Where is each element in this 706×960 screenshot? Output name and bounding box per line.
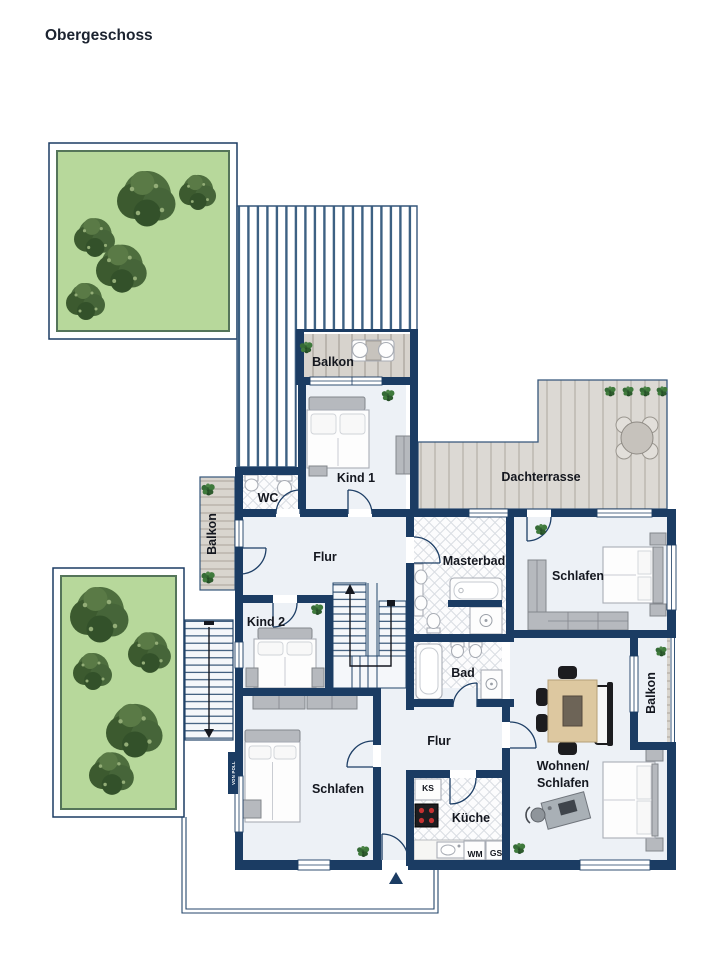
bed-kind2: [246, 628, 324, 688]
room-label-flur-upper: Flur: [313, 550, 337, 564]
room-label-wohnen-1: Wohnen/: [537, 759, 590, 773]
window: [310, 377, 382, 385]
garden-lower: [53, 568, 184, 817]
room-label-bad: Bad: [451, 666, 475, 680]
window: [630, 656, 638, 712]
lounger: [352, 340, 394, 361]
room-label-balkon-top: Balkon: [312, 355, 354, 369]
room-label-kueche: Küche: [452, 811, 490, 825]
terrace-table: [616, 417, 658, 459]
window: [580, 860, 650, 870]
appliance-label-wm: WM: [467, 849, 482, 859]
brand-watermark: VON POLL: [228, 752, 238, 794]
bed-schlafen-lower: [242, 730, 300, 822]
sideboard: [253, 694, 357, 709]
bed-kind1: [307, 397, 369, 476]
window: [235, 520, 243, 547]
wardrobe-kind1: [396, 436, 412, 474]
watermark-text: VON POLL: [231, 761, 236, 785]
room-label-wc: WC: [258, 491, 279, 505]
window: [667, 545, 676, 610]
room-label-kind1: Kind 1: [337, 471, 375, 485]
bed-wohnen: [603, 748, 663, 851]
floorplan-page: Obergeschoss Balkon Kind 1 WC Dachterras…: [0, 0, 706, 960]
room-label-schlafen-lower: Schlafen: [312, 782, 364, 796]
room-label-wohnen-2: Schlafen: [537, 776, 589, 790]
window: [597, 509, 652, 517]
page-title: Obergeschoss: [45, 27, 153, 44]
room-label-balkon-left: Balkon: [205, 513, 219, 555]
window: [298, 860, 330, 870]
appliance-label-gs: GS: [490, 848, 503, 858]
room-label-dachterrasse: Dachterrasse: [501, 470, 580, 484]
exterior-stairs: [185, 620, 233, 740]
floorplan: Obergeschoss Balkon Kind 1 WC Dachterras…: [0, 0, 706, 960]
window: [469, 509, 508, 517]
room-label-flur-lower: Flur: [427, 734, 451, 748]
room-label-masterbad: Masterbad: [443, 554, 506, 568]
garden-upper: [49, 143, 237, 339]
window: [235, 642, 243, 668]
room-label-schlafen-upper: Schlafen: [552, 569, 604, 583]
room-label-balkon-right: Balkon: [644, 672, 658, 714]
room-label-kind2: Kind 2: [247, 615, 285, 629]
appliance-label-ks: KS: [422, 783, 434, 793]
entrance-arrow-icon: [389, 872, 403, 884]
